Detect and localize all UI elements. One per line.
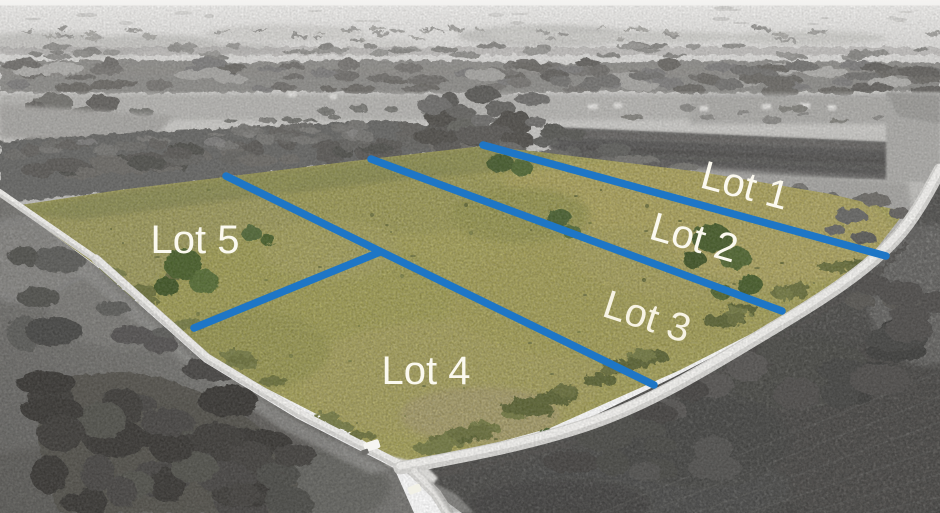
svg-text:Lot 5: Lot 5 (151, 218, 240, 262)
svg-text:Lot 4: Lot 4 (382, 349, 471, 393)
